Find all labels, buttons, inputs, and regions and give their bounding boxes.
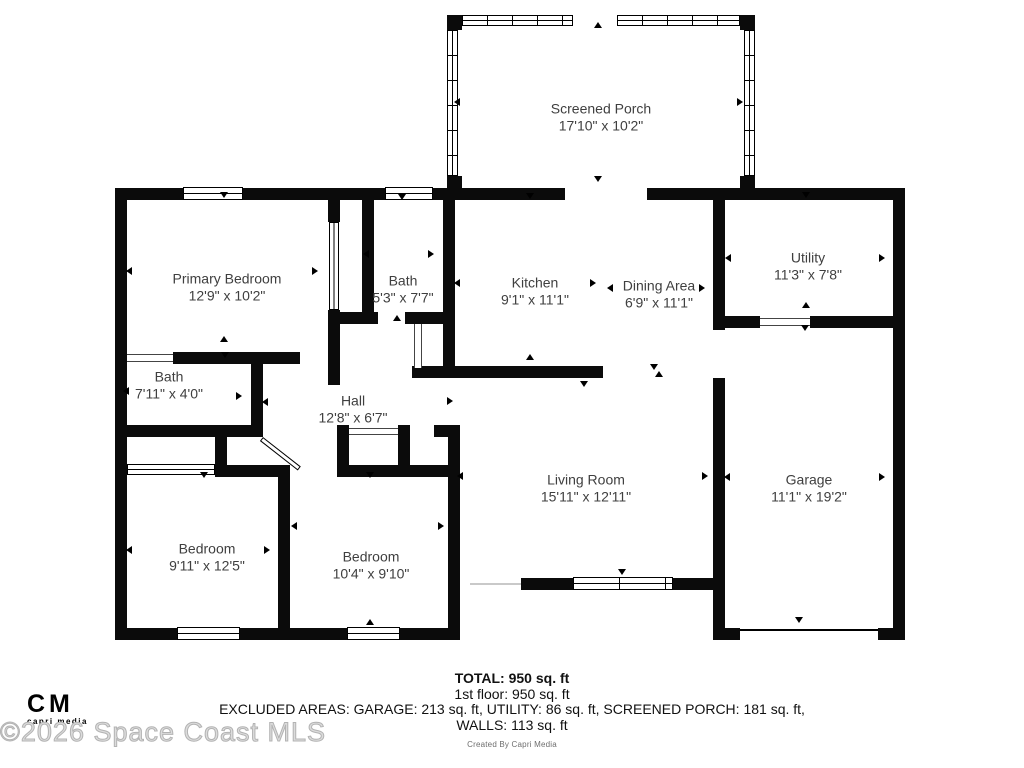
dimension-arrow-icon <box>699 284 705 292</box>
wall <box>337 465 460 477</box>
floor-plan: Screened Porch 17'10" x 10'2" Primary Be… <box>0 0 1024 768</box>
wall <box>240 628 347 640</box>
dimension-arrow-icon <box>126 267 132 275</box>
dimension-arrow-icon <box>795 617 803 623</box>
dimension-arrow-icon <box>393 315 401 321</box>
dimension-arrow-icon <box>607 284 613 292</box>
dimension-arrow-icon <box>879 254 885 262</box>
dimension-arrow-icon <box>802 192 810 198</box>
wall <box>443 200 455 312</box>
wall <box>328 312 378 324</box>
wall <box>647 188 905 200</box>
dimension-arrow-icon <box>454 279 460 287</box>
dimension-arrow-icon <box>236 392 242 400</box>
room-dims: 10'4" x 9'10" <box>333 565 410 582</box>
dimension-arrow-icon <box>526 193 534 199</box>
room-dims: 12'9" x 10'2" <box>173 287 282 304</box>
room-name: Bath <box>372 273 433 290</box>
summary-floor: 1st floor: 950 sq. ft <box>0 687 1024 703</box>
room-name: Kitchen <box>501 275 569 292</box>
dimension-arrow-icon <box>724 473 730 481</box>
summary-excluded: EXCLUDED AREAS: GARAGE: 213 sq. ft, UTIL… <box>0 702 1024 718</box>
wall <box>243 188 385 200</box>
dimension-arrow-icon <box>737 98 743 106</box>
wall <box>448 578 460 640</box>
window <box>177 627 240 640</box>
dimension-arrow-icon <box>438 522 444 530</box>
wall <box>115 188 127 640</box>
wall <box>893 188 905 640</box>
wall <box>448 425 460 578</box>
front-entry-line <box>470 583 521 585</box>
wall <box>115 628 177 640</box>
dimension-arrow-icon <box>526 354 534 360</box>
room-label-kitchen: Kitchen 9'1" x 11'1" <box>501 275 569 308</box>
dimension-arrow-icon <box>590 279 596 287</box>
door-opening <box>127 354 173 362</box>
room-name: Living Room <box>541 472 631 489</box>
screen-panel <box>617 15 740 26</box>
dimension-arrow-icon <box>366 472 374 478</box>
room-name: Bedroom <box>169 541 245 558</box>
wall <box>447 15 462 30</box>
room-dims: 17'10" x 10'2" <box>551 117 651 134</box>
room-dims: 9'11" x 12'5" <box>169 557 245 574</box>
wall <box>740 176 755 190</box>
room-name: Bedroom <box>333 549 410 566</box>
sliding-glass-door <box>573 577 673 590</box>
room-label-hall: Hall 12'8" x 6'7" <box>319 393 388 426</box>
room-dims: 12'8" x 6'7" <box>319 409 388 426</box>
wall <box>713 200 725 330</box>
room-dims: 6'9" x 11'1" <box>623 294 695 311</box>
dimension-arrow-icon <box>123 387 129 395</box>
window <box>183 187 243 200</box>
dimension-arrow-icon <box>264 546 270 554</box>
room-label-dining-area: Dining Area 6'9" x 11'1" <box>623 278 695 311</box>
dimension-arrow-icon <box>618 569 626 575</box>
wall <box>878 628 905 640</box>
dimension-arrow-icon <box>594 176 602 182</box>
wall <box>810 316 905 328</box>
dimension-arrow-icon <box>220 192 228 198</box>
dimension-arrow-icon <box>126 546 132 554</box>
dimension-arrow-icon <box>580 381 588 387</box>
wall <box>521 578 573 590</box>
room-label-bedroom-left: Bedroom 9'11" x 12'5" <box>169 541 245 574</box>
garage-door-line <box>740 629 878 631</box>
room-label-primary-bedroom: Primary Bedroom 12'9" x 10'2" <box>173 271 282 304</box>
dimension-arrow-icon <box>801 325 809 331</box>
door-opening <box>349 428 398 435</box>
dimension-arrow-icon <box>220 336 228 342</box>
dimension-arrow-icon <box>454 98 460 106</box>
room-name: Dining Area <box>623 278 695 295</box>
room-label-screened-porch: Screened Porch 17'10" x 10'2" <box>551 101 651 134</box>
room-name: Garage <box>771 472 847 489</box>
wall <box>447 176 462 190</box>
room-dims: 11'3" x 7'8" <box>774 266 842 283</box>
wall <box>328 200 340 222</box>
room-name: Screened Porch <box>551 101 651 118</box>
room-name: Primary Bedroom <box>173 271 282 288</box>
logo-text: CM <box>27 692 88 717</box>
dimension-arrow-icon <box>802 302 810 308</box>
dimension-arrow-icon <box>398 194 406 200</box>
window <box>385 187 433 200</box>
dimension-arrow-icon <box>366 619 374 625</box>
wall <box>115 425 263 437</box>
wall <box>740 15 755 30</box>
dimension-arrow-icon <box>879 473 885 481</box>
room-label-bedroom-right: Bedroom 10'4" x 9'10" <box>333 549 410 582</box>
dimension-arrow-icon <box>200 472 208 478</box>
room-label-garage: Garage 11'1" x 19'2" <box>771 472 847 505</box>
dimension-arrow-icon <box>702 472 708 480</box>
wall <box>412 366 603 378</box>
dimension-arrow-icon <box>291 522 297 530</box>
dimension-arrow-icon <box>650 364 658 370</box>
room-label-utility: Utility 11'3" x 7'8" <box>774 250 842 283</box>
dimension-arrow-icon <box>312 267 318 275</box>
dimension-arrow-icon <box>221 352 229 358</box>
summary-total: TOTAL: 950 sq. ft <box>0 671 1024 687</box>
room-name: Bath <box>135 369 203 386</box>
closet-sliding-door <box>329 222 339 310</box>
wall <box>173 352 300 364</box>
door-opening <box>414 324 422 368</box>
room-label-living-room: Living Room 15'11" x 12'11" <box>541 472 631 505</box>
dimension-arrow-icon <box>262 398 268 406</box>
room-dims: 11'1" x 19'2" <box>771 488 847 505</box>
mls-watermark: ©2026 Space Coast MLS <box>0 717 326 748</box>
room-dims: 15'11" x 12'11" <box>541 488 631 505</box>
wall <box>215 437 227 467</box>
wall <box>713 378 725 640</box>
dimension-arrow-icon <box>594 22 602 28</box>
window <box>347 627 400 640</box>
dimension-arrow-icon <box>447 397 453 405</box>
room-name: Hall <box>319 393 388 410</box>
dimension-arrow-icon <box>725 254 731 262</box>
dimension-arrow-icon <box>655 371 663 377</box>
room-dims: 7'11" x 4'0" <box>135 385 203 402</box>
dimension-arrow-icon <box>363 250 369 258</box>
room-dims: 5'3" x 7'7" <box>372 289 433 306</box>
room-label-bath-upper: Bath 5'3" x 7'7" <box>372 273 433 306</box>
wall <box>278 465 290 640</box>
screen-panel <box>744 30 755 176</box>
dimension-arrow-icon <box>428 250 434 258</box>
wall <box>713 316 760 328</box>
dimension-arrow-icon <box>457 472 463 480</box>
screen-panel <box>462 15 573 26</box>
room-label-bath-lower: Bath 7'11" x 4'0" <box>135 369 203 402</box>
room-name: Utility <box>774 250 842 267</box>
room-dims: 9'1" x 11'1" <box>501 291 569 308</box>
